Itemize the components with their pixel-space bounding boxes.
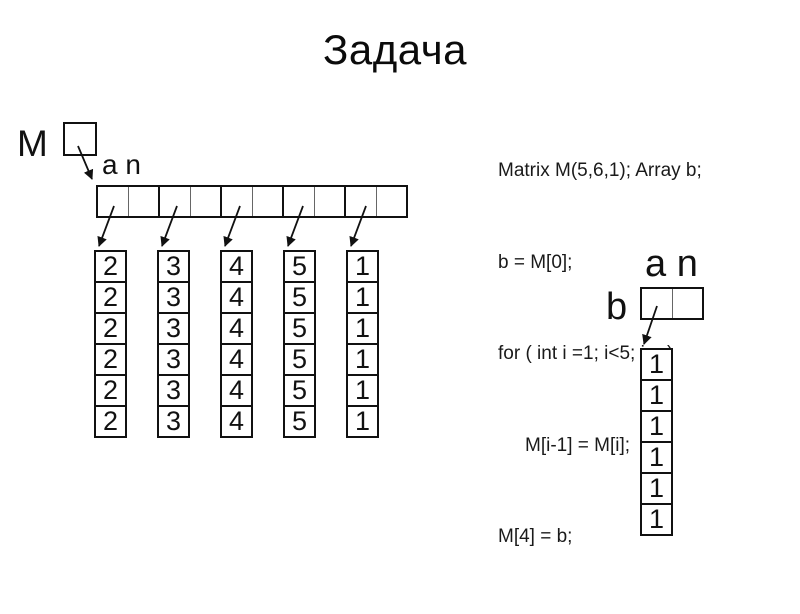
matrix-cell: 5 — [283, 343, 316, 376]
matrix-cell: 5 — [283, 250, 316, 283]
pair-cell-n — [190, 187, 221, 216]
array-b-cell: 1 — [640, 441, 673, 474]
slide-title: Задача — [0, 26, 790, 74]
matrix-cell: 4 — [220, 312, 253, 345]
matrix-columns: 222222333333444444555555111111 — [94, 250, 379, 438]
matrix-descriptor-array — [96, 185, 408, 218]
matrix-cell: 4 — [220, 281, 253, 314]
matrix-cell: 4 — [220, 250, 253, 283]
matrix-cell: 1 — [346, 405, 379, 438]
matrix-cell: 3 — [157, 312, 190, 345]
array-b-cell: 1 — [640, 503, 673, 536]
matrix-cell: 3 — [157, 343, 190, 376]
matrix-column-4: 111111 — [346, 250, 379, 438]
matrix-cell: 3 — [157, 405, 190, 438]
matrix-pointer-box — [63, 122, 97, 156]
matrix-cell: 2 — [94, 250, 127, 283]
pair-cell-n — [314, 187, 345, 216]
array-b-cell: 1 — [640, 379, 673, 412]
matrix-cell: 3 — [157, 281, 190, 314]
descriptor-pair-0 — [96, 185, 160, 218]
matrix-cell: 1 — [346, 281, 379, 314]
matrix-cell: 5 — [283, 281, 316, 314]
matrix-cell: 1 — [346, 250, 379, 283]
matrix-column-3: 555555 — [283, 250, 316, 438]
code-line: Matrix M(5,6,1); Array b; — [498, 156, 702, 187]
array-b-column: 111111 — [640, 350, 673, 536]
matrix-cell: 2 — [94, 374, 127, 407]
matrix-cell: 1 — [346, 343, 379, 376]
array-b-cell: 1 — [640, 472, 673, 505]
array-b-header-a-n: a n — [645, 245, 698, 283]
matrix-header-a-n: a n — [102, 151, 141, 179]
array-b-label: b — [606, 288, 627, 326]
matrix-cell: 2 — [94, 405, 127, 438]
matrix-cell: 2 — [94, 312, 127, 345]
matrix-cell: 5 — [283, 374, 316, 407]
descriptor-pair-4 — [344, 185, 408, 218]
pair-cell-a — [160, 187, 190, 216]
pair-cell-n — [376, 187, 407, 216]
matrix-cell: 1 — [346, 312, 379, 345]
pair-cell-a — [346, 187, 376, 216]
matrix-column-0: 222222 — [94, 250, 127, 438]
pair-cell-a — [222, 187, 252, 216]
pair-cell-n — [252, 187, 283, 216]
matrix-column-2: 444444 — [220, 250, 253, 438]
matrix-cell: 4 — [220, 374, 253, 407]
array-b-descriptor-box — [640, 287, 704, 320]
matrix-cell: 3 — [157, 250, 190, 283]
array-b-descriptor-pair — [640, 287, 704, 320]
matrix-cell: 1 — [346, 374, 379, 407]
array-b-cell: 1 — [640, 410, 673, 443]
pair-cell-a — [284, 187, 314, 216]
array-b-cell: 1 — [640, 348, 673, 381]
slide: Задача Matrix M(5,6,1); Array b; b = M[0… — [0, 0, 800, 600]
matrix-cell: 4 — [220, 343, 253, 376]
pair-cell-a — [98, 187, 128, 216]
matrix-cell: 4 — [220, 405, 253, 438]
matrix-cell: 3 — [157, 374, 190, 407]
descriptor-pair-3 — [282, 185, 346, 218]
pair-cell-n — [672, 289, 703, 318]
matrix-cell: 2 — [94, 281, 127, 314]
descriptor-pair-2 — [220, 185, 284, 218]
matrix-cell: 5 — [283, 312, 316, 345]
matrix-column-1: 333333 — [157, 250, 190, 438]
matrix-cell: 2 — [94, 343, 127, 376]
matrix-cell: 5 — [283, 405, 316, 438]
descriptor-pair-1 — [158, 185, 222, 218]
pair-cell-a — [642, 289, 672, 318]
matrix-pointer-label: M — [17, 125, 48, 162]
pair-cell-n — [128, 187, 159, 216]
